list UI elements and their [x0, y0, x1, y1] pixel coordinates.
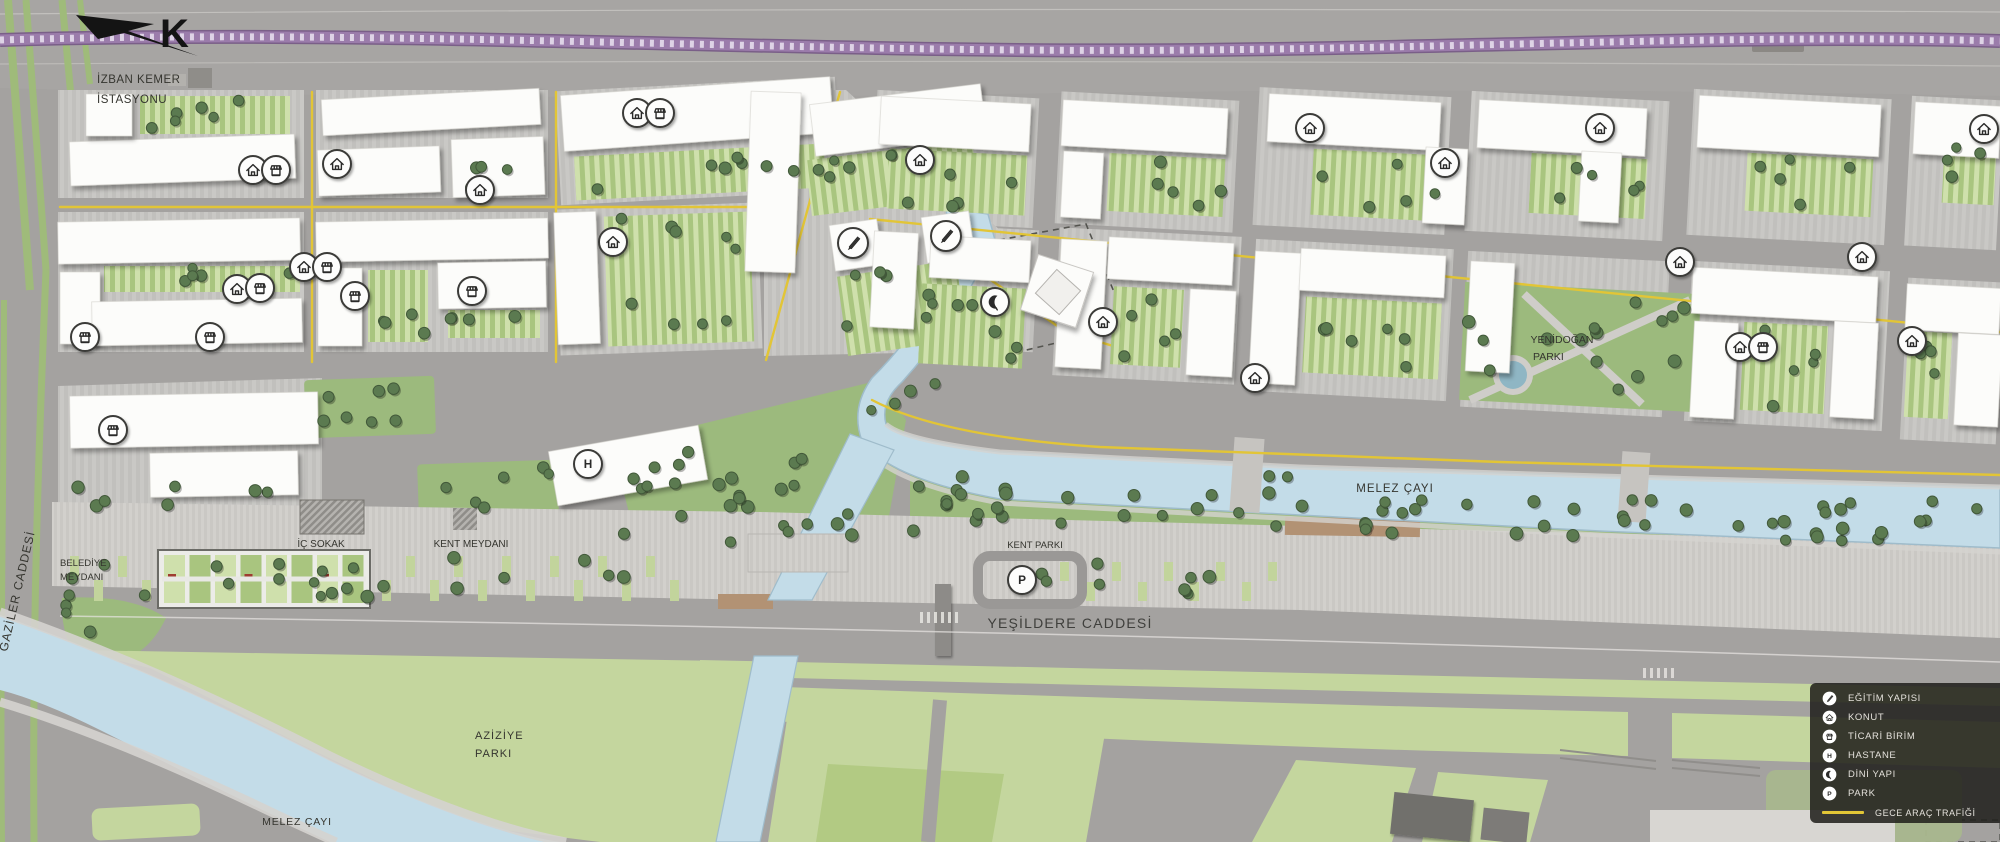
tree — [1346, 336, 1357, 347]
legend-label: KONUT — [1848, 712, 1884, 723]
tree — [844, 162, 855, 173]
tree — [1186, 572, 1197, 583]
tree — [1092, 558, 1103, 569]
tree — [99, 496, 110, 507]
tree — [1680, 504, 1692, 516]
tree — [1215, 185, 1227, 197]
tree — [1632, 370, 1644, 382]
tree — [341, 412, 352, 423]
hastane-map-icon — [574, 450, 602, 478]
konut-map-icon — [1666, 248, 1694, 276]
tree — [1555, 193, 1565, 203]
tree — [1927, 496, 1938, 507]
tree — [1146, 294, 1157, 305]
tree — [842, 321, 852, 331]
ticari-map-icon — [262, 156, 290, 184]
legend-label: EĞİTİM YAPISI — [1848, 693, 1921, 704]
egitim-map-icon — [838, 228, 868, 258]
tree — [441, 482, 451, 492]
tree — [418, 327, 430, 339]
tree — [1810, 349, 1820, 359]
tree — [448, 552, 460, 564]
legend-item-ticari: TİCARİ BİRİM — [1822, 727, 2000, 746]
masterplan-map: H P K İZBAN KEMER İSTASYONU GAZİLER CADD… — [0, 0, 2000, 842]
tree — [1170, 329, 1180, 339]
tree — [603, 570, 613, 580]
tree — [945, 169, 956, 180]
tree — [706, 160, 716, 170]
tree — [188, 271, 198, 281]
tree — [170, 481, 181, 492]
konut-map-icon — [323, 150, 351, 178]
belediye-meydani-label-1: BELEDİYE — [60, 558, 106, 569]
tree — [1930, 369, 1939, 378]
tree — [725, 472, 737, 484]
tree — [1160, 336, 1170, 346]
kent-parki-label: KENT PARKI — [1007, 540, 1063, 551]
yenidogan-parki-label-1: YENİDOĞAN — [1530, 333, 1593, 346]
tree — [921, 312, 931, 322]
tree — [64, 590, 74, 600]
tree — [902, 197, 913, 208]
tree — [1845, 162, 1855, 172]
tree — [348, 563, 358, 573]
tree — [1775, 174, 1786, 185]
tree — [1836, 522, 1848, 534]
tree — [1380, 497, 1391, 508]
egitim-map-icon — [931, 221, 961, 251]
tree — [1179, 584, 1191, 596]
tree — [309, 578, 318, 587]
tree — [1462, 316, 1475, 329]
tree — [618, 528, 629, 539]
night-traffic-line-sample — [1822, 811, 1864, 814]
tree — [788, 165, 799, 176]
legend-item-park: PARK — [1822, 784, 2000, 803]
tree — [813, 165, 824, 176]
tree — [1094, 579, 1104, 589]
tree — [722, 232, 731, 241]
tree — [1845, 498, 1855, 508]
tree — [316, 591, 325, 600]
tree — [1282, 472, 1292, 482]
konut-map-icon — [1296, 114, 1324, 142]
tree — [1401, 361, 1411, 371]
park-icon — [1822, 786, 1837, 801]
tree — [249, 485, 261, 497]
tree — [1152, 178, 1163, 189]
legend-label: DİNİ YAPI — [1848, 769, 1896, 780]
tree — [649, 462, 660, 473]
tree — [626, 298, 637, 309]
tree — [262, 487, 272, 497]
tree — [1568, 503, 1580, 515]
tree — [676, 510, 687, 521]
ticari-map-icon — [313, 253, 341, 281]
tree — [875, 267, 886, 278]
tree — [379, 317, 391, 329]
tree — [61, 608, 70, 617]
tree — [406, 309, 417, 320]
tree — [952, 300, 963, 311]
tree — [1668, 355, 1681, 368]
tree — [1264, 471, 1275, 482]
tree — [233, 95, 244, 106]
tree — [1416, 495, 1426, 505]
tree — [1383, 324, 1392, 333]
legend-label: GECE ARAÇ TRAFİĞİ — [1875, 808, 1976, 818]
tree — [1154, 156, 1166, 168]
tree — [1484, 365, 1495, 376]
tree — [1571, 162, 1582, 173]
tree — [499, 572, 510, 583]
ticari-map-icon — [196, 323, 224, 351]
tree — [642, 481, 652, 491]
tree — [956, 471, 968, 483]
tree — [617, 571, 630, 584]
tree — [1206, 490, 1217, 501]
tree — [479, 502, 490, 513]
tree — [498, 472, 508, 482]
tree — [1795, 199, 1806, 210]
tree — [1975, 148, 1986, 159]
tree — [734, 492, 746, 504]
tree — [670, 226, 681, 237]
tree — [1645, 495, 1657, 507]
tree — [544, 469, 554, 479]
tree — [1528, 496, 1540, 508]
tree — [1510, 527, 1523, 540]
tree — [1321, 323, 1333, 335]
tree — [1914, 516, 1925, 527]
tree — [796, 453, 807, 464]
tree — [1767, 518, 1777, 528]
tree — [989, 326, 1001, 338]
tree — [1271, 521, 1282, 532]
tree — [905, 385, 917, 397]
konut-map-icon — [1586, 114, 1614, 142]
dini-map-icon — [981, 288, 1009, 316]
tree — [1767, 400, 1778, 411]
legend-label: TİCARİ BİRİM — [1848, 731, 1915, 742]
tree — [1462, 499, 1472, 509]
tree — [1591, 356, 1602, 367]
ticari-map-icon — [99, 416, 127, 444]
north-label: K — [160, 12, 189, 56]
tree — [991, 502, 1003, 514]
ticari-map-icon — [458, 277, 486, 305]
tree — [1401, 196, 1412, 207]
tree — [789, 480, 799, 490]
tree — [1820, 507, 1831, 518]
legend-item-konut: KONUT — [1822, 708, 2000, 727]
tree — [341, 583, 352, 594]
tree — [1157, 510, 1167, 520]
tree — [732, 152, 743, 163]
tree — [1640, 520, 1650, 530]
tree — [1386, 527, 1398, 539]
tree — [1203, 570, 1216, 583]
station-label-2: İSTASYONU — [97, 93, 167, 106]
konut-map-icon — [1089, 308, 1117, 336]
tree — [1629, 185, 1639, 195]
tree — [1119, 351, 1130, 362]
tree — [84, 626, 96, 638]
tree — [1397, 508, 1408, 519]
tree — [1000, 487, 1013, 500]
tree — [698, 319, 708, 329]
aziziye-parki-label-1: AZİZİYE — [475, 729, 524, 742]
tree — [1778, 515, 1790, 527]
tree — [867, 405, 876, 414]
tree — [1127, 310, 1137, 320]
tree — [713, 478, 725, 490]
legend-label: PARK — [1848, 788, 1876, 799]
tree — [274, 574, 285, 585]
tree — [616, 213, 627, 224]
konut-map-icon — [599, 228, 627, 256]
tree — [390, 415, 401, 426]
tree — [1613, 384, 1624, 395]
tree — [967, 300, 978, 311]
tree — [223, 578, 233, 588]
tree — [668, 319, 679, 330]
tree — [1006, 177, 1016, 187]
map-canvas: H P K İZBAN KEMER İSTASYONU GAZİLER CADD… — [0, 0, 2000, 842]
konut-map-icon — [1970, 115, 1998, 143]
tree — [1430, 189, 1440, 199]
tree — [731, 244, 740, 253]
tree — [1657, 316, 1667, 326]
tree — [318, 415, 330, 427]
tree — [846, 529, 859, 542]
tree — [1364, 201, 1375, 212]
ticari-map-icon — [246, 274, 274, 302]
tree — [378, 580, 390, 592]
tree — [366, 417, 376, 427]
tree — [509, 310, 521, 322]
konut-map-icon — [1848, 243, 1876, 271]
legend-label: HASTANE — [1848, 750, 1896, 761]
tree — [1567, 529, 1579, 541]
tree — [1191, 503, 1203, 515]
tree — [1360, 524, 1370, 534]
tree — [1234, 508, 1244, 518]
egitim-icon — [1822, 691, 1837, 706]
tree — [1785, 155, 1794, 164]
tree — [274, 559, 285, 570]
tree — [592, 184, 603, 195]
tree — [1538, 520, 1550, 532]
tree — [824, 172, 834, 182]
tree — [930, 379, 940, 389]
tree — [463, 314, 474, 325]
tree — [1118, 510, 1130, 522]
tree — [1392, 159, 1402, 169]
konut-map-icon — [1241, 364, 1269, 392]
dini-icon — [1822, 767, 1837, 782]
tree — [1317, 171, 1328, 182]
tree — [1618, 515, 1630, 527]
ticari-map-icon — [1749, 333, 1777, 361]
tree — [1837, 535, 1847, 545]
konut-map-icon — [466, 176, 494, 204]
ticari-map-icon — [341, 282, 369, 310]
ticari-map-icon — [71, 323, 99, 351]
tree — [725, 537, 735, 547]
legend: EĞİTİM YAPISIKONUTTİCARİ BİRİMHASTANEDİN… — [1810, 683, 2000, 823]
kent-meydani-label: KENT MEYDANI — [434, 539, 509, 550]
tree — [1789, 366, 1798, 375]
tree — [170, 116, 180, 126]
tree — [802, 519, 813, 530]
tree — [850, 270, 860, 280]
tree — [669, 478, 680, 489]
ic-sokak-label: İÇ SOKAK — [297, 537, 345, 550]
tree — [719, 162, 731, 174]
tree — [317, 566, 327, 576]
tree — [1128, 489, 1140, 501]
melez-cayi-lower-label: MELEZ ÇAYI — [262, 816, 332, 828]
tree — [1627, 495, 1637, 505]
tree — [1041, 576, 1051, 586]
tree — [886, 150, 896, 160]
tree — [1630, 297, 1641, 308]
legend-item-dini: DİNİ YAPI — [1822, 765, 2000, 784]
hastane-icon — [1822, 748, 1837, 763]
tree — [1006, 353, 1016, 363]
tree — [196, 102, 207, 113]
tree — [1193, 200, 1204, 211]
tree — [1972, 504, 1982, 514]
tree — [1942, 155, 1952, 165]
tree — [445, 313, 456, 324]
tree — [1667, 311, 1678, 322]
ticari-map-icon — [646, 99, 674, 127]
tree — [1925, 346, 1936, 357]
tree — [928, 299, 938, 309]
tree — [973, 508, 984, 519]
yenidogan-parki-label-2: PARKI — [1533, 351, 1564, 363]
tree — [1587, 170, 1596, 179]
konut-icon — [1822, 710, 1837, 725]
tree — [955, 489, 966, 500]
tree — [1168, 187, 1178, 197]
tree — [913, 481, 924, 492]
tree — [1733, 521, 1744, 532]
tree — [1875, 526, 1887, 538]
legend-item-hastane: HASTANE — [1822, 746, 2000, 765]
ticari-icon — [1822, 729, 1837, 744]
tree — [476, 161, 487, 172]
tree — [209, 112, 219, 122]
tree — [72, 481, 84, 493]
tree — [831, 518, 843, 530]
tree — [139, 590, 150, 601]
park-map-icon — [1008, 566, 1036, 594]
tree — [1399, 334, 1410, 345]
legend-item-egitim: EĞİTİM YAPISI — [1822, 689, 2000, 708]
konut-map-icon — [906, 146, 934, 174]
tree — [1946, 171, 1958, 183]
tree — [1952, 143, 1961, 152]
tree — [326, 587, 337, 598]
tree — [1755, 161, 1766, 172]
tree — [775, 483, 787, 495]
tree — [1263, 487, 1275, 499]
tree — [908, 525, 920, 537]
tree — [830, 156, 839, 165]
tree — [1062, 491, 1074, 503]
tree — [373, 385, 385, 397]
tree — [673, 459, 684, 470]
tree — [783, 527, 793, 537]
tree — [890, 398, 901, 409]
tree — [578, 554, 590, 566]
belediye-meydani-label-2: MEYDANI — [60, 572, 103, 583]
tree — [1589, 323, 1599, 333]
tree — [451, 582, 464, 595]
tree — [1056, 518, 1066, 528]
tree — [502, 165, 512, 175]
tree — [1678, 302, 1690, 314]
konut-map-icon — [1431, 149, 1459, 177]
tree — [1478, 335, 1488, 345]
tree — [146, 122, 157, 133]
melez-cayi-upper-label: MELEZ ÇAYI — [1356, 483, 1434, 495]
tree — [1012, 342, 1022, 352]
tree — [1296, 500, 1308, 512]
tree — [162, 499, 174, 511]
tree — [388, 383, 400, 395]
konut-map-icon — [1898, 327, 1926, 355]
tree — [211, 561, 222, 572]
aziziye-parki-label-2: PARKI — [475, 748, 512, 760]
tree — [1811, 531, 1823, 543]
station-label-1: İZBAN KEMER — [97, 73, 180, 86]
tree — [682, 446, 693, 457]
tree — [361, 590, 374, 603]
tree — [323, 391, 334, 402]
tree — [761, 161, 772, 172]
tree — [1835, 503, 1847, 515]
tree — [843, 509, 853, 519]
tree — [628, 473, 639, 484]
tree — [1781, 535, 1791, 545]
tree — [947, 200, 959, 212]
legend-item-night-traffic: GECE ARAÇ TRAFİĞİ — [1822, 803, 2000, 822]
yesildere-caddesi-label: YEŞİLDERE CADDESİ — [987, 614, 1152, 631]
tree — [721, 316, 731, 326]
tree — [942, 499, 952, 509]
